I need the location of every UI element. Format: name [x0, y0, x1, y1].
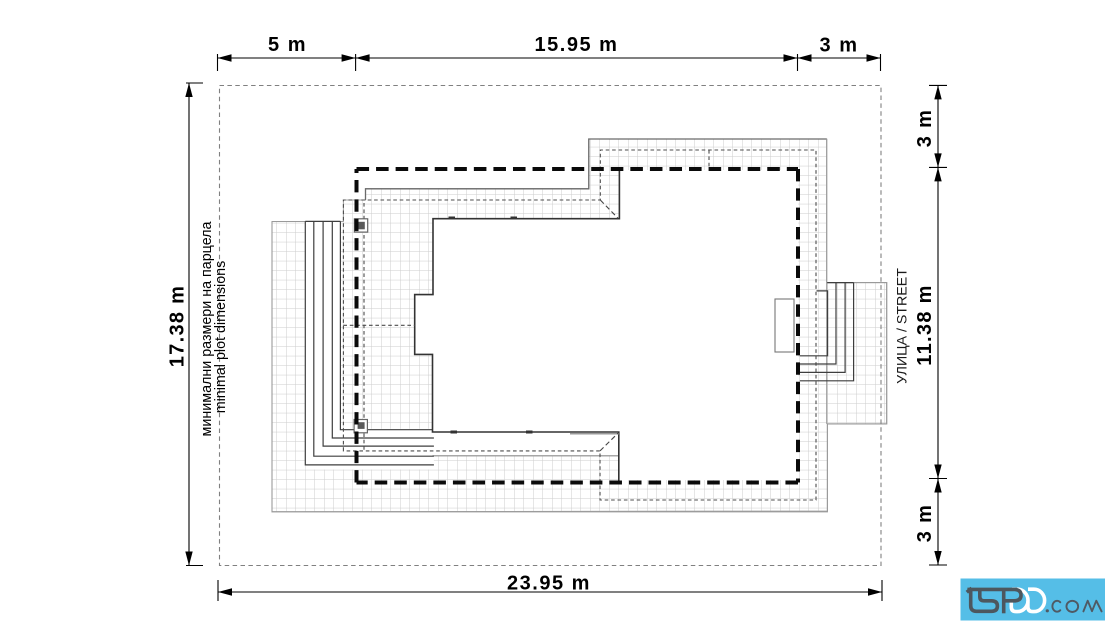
svg-text:15.95 m: 15.95 m: [535, 34, 619, 56]
svg-text:23.95 m: 23.95 m: [507, 573, 591, 595]
svg-text:17.38 m: 17.38 m: [167, 285, 189, 368]
svg-text:11.38 m: 11.38 m: [914, 284, 936, 365]
svg-text:3 m: 3 m: [914, 504, 936, 542]
svg-text:УЛИЦА / STREET: УЛИЦА / STREET: [895, 268, 911, 384]
svg-text:minimal plot dimensions: minimal plot dimensions: [213, 261, 229, 414]
svg-text:5 m: 5 m: [268, 34, 307, 56]
svg-text:3 m: 3 m: [914, 109, 936, 147]
svg-text:3 m: 3 m: [820, 35, 859, 57]
